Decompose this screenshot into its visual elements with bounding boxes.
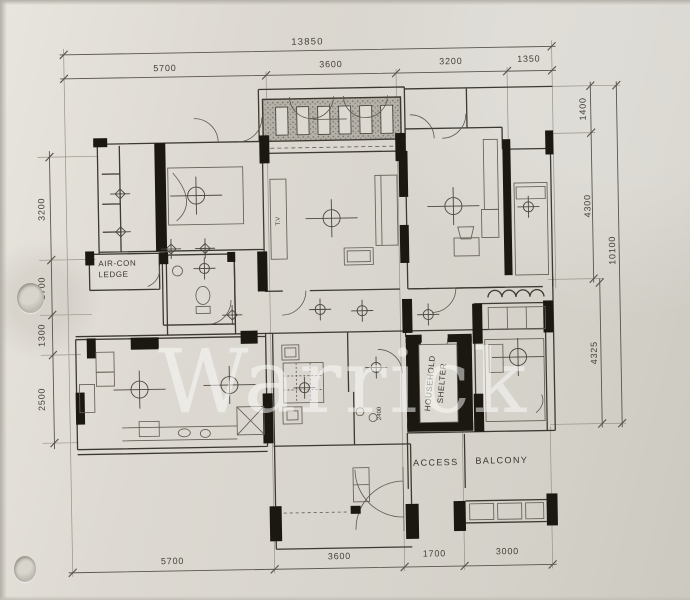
walls-layer xyxy=(71,84,560,552)
scanned-paper: 13850 5700 3600 3200 1350 5700 3600 1700… xyxy=(0,0,690,600)
label-access: ACCESS xyxy=(413,457,459,468)
label-balcony: BALCONY xyxy=(475,455,528,466)
black-walls-layer xyxy=(71,130,560,544)
dim-right-seg-4300: 4300 xyxy=(582,194,592,217)
dim-right-seg-4325: 4325 xyxy=(589,341,599,364)
dim-bot-seg-3600: 3600 xyxy=(328,551,351,561)
dim-left-seg-3200: 3200 xyxy=(36,198,46,221)
dim-top-overall: 13850 xyxy=(291,36,324,48)
dim-bot-seg-5700: 5700 xyxy=(161,556,184,566)
label-aircon-line2: LEDGE xyxy=(98,270,128,280)
label-tv: T.V xyxy=(276,217,282,226)
punch-hole-bottom xyxy=(14,556,36,582)
floor-plan-drawing: 13850 5700 3600 3200 1350 5700 3600 1700… xyxy=(0,0,690,600)
label-2400: 2400 xyxy=(377,406,383,420)
dim-top-seg-5700: 5700 xyxy=(153,63,176,73)
dim-right-overall: 10100 xyxy=(607,236,618,265)
dim-top-seg-3200: 3200 xyxy=(439,56,462,66)
label-aircon-line1: AIR-CON xyxy=(98,259,136,269)
dim-top-seg-1350: 1350 xyxy=(517,54,540,64)
dim-left-seg-2500: 2500 xyxy=(36,388,46,411)
dim-top-seg-3600: 3600 xyxy=(319,59,342,69)
balcony-planter xyxy=(262,95,401,148)
dim-bot-seg-3000: 3000 xyxy=(496,546,519,556)
punch-hole-top xyxy=(17,283,44,313)
dim-right-seg-1400: 1400 xyxy=(577,97,587,120)
dim-bot-seg-1700: 1700 xyxy=(423,548,446,558)
dim-left-seg-1300: 1300 xyxy=(36,324,46,347)
